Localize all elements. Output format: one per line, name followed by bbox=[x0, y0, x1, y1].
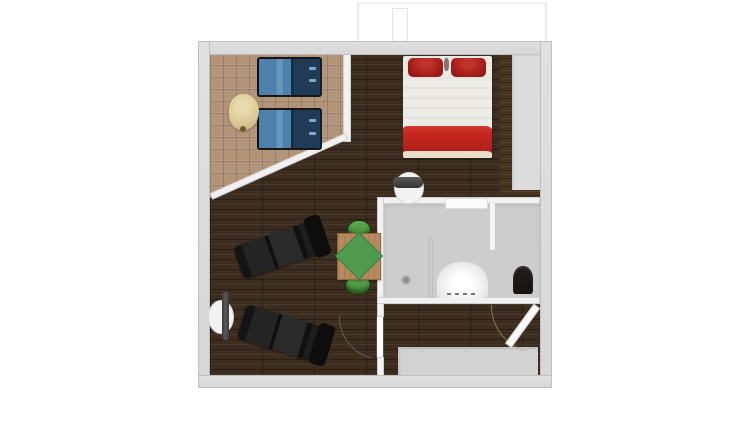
bathtub bbox=[437, 262, 488, 298]
left-door-swing bbox=[208, 300, 234, 334]
faint-roof-line-right bbox=[545, 2, 547, 41]
bathtub-edge-marks bbox=[447, 293, 477, 295]
toilet bbox=[513, 266, 533, 294]
shower-drain bbox=[401, 275, 411, 285]
left-door-panel bbox=[222, 292, 229, 340]
faint-wall-stub bbox=[392, 8, 408, 44]
double-bed bbox=[403, 56, 492, 158]
entry-wall-lower bbox=[377, 357, 384, 376]
bed-duvet bbox=[403, 77, 492, 126]
sun-lounger-2 bbox=[257, 108, 322, 150]
faint-roof-line-horizontal bbox=[357, 2, 547, 4]
outer-wall-bottom bbox=[198, 375, 552, 388]
pillow-gap-mark bbox=[444, 58, 449, 71]
interior-door-arc bbox=[339, 316, 381, 358]
bathroom-door-panel bbox=[393, 177, 423, 188]
side-table-leg bbox=[240, 126, 246, 132]
closet-niche bbox=[512, 55, 540, 198]
shower-partition-wall bbox=[428, 238, 433, 297]
bathroom-wall-bottom bbox=[377, 297, 540, 304]
sun-lounger-1 bbox=[257, 57, 322, 97]
outer-wall-top bbox=[198, 41, 552, 55]
outer-wall-right bbox=[540, 41, 552, 388]
outer-wall-left bbox=[198, 41, 210, 388]
faint-roof-line-left bbox=[357, 2, 359, 41]
bed-pillow-left bbox=[408, 58, 443, 77]
bed-footer-sheet bbox=[403, 151, 492, 158]
entry-wall-upper bbox=[377, 303, 384, 317]
bathroom-wall-shelf bbox=[445, 198, 488, 209]
floorplan bbox=[0, 0, 754, 435]
closet-wood-panel-vertical bbox=[500, 55, 512, 191]
toilet-partition-wall bbox=[490, 203, 495, 250]
bed-pillow-right bbox=[451, 58, 486, 77]
bed-blanket bbox=[403, 126, 492, 153]
balcony-wall-vertical bbox=[343, 47, 351, 142]
